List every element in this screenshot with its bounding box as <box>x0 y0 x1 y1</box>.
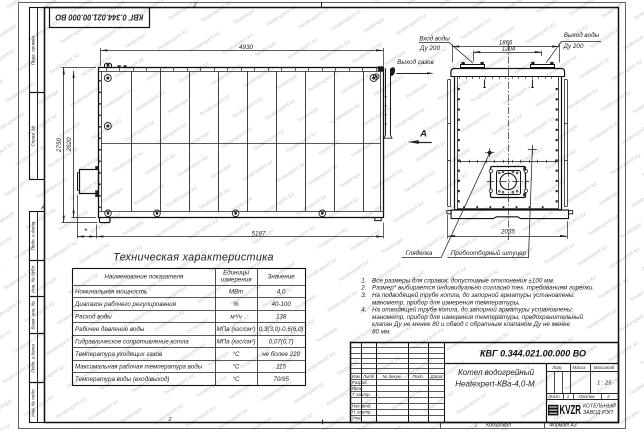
svg-text:5187: 5187 <box>251 231 266 238</box>
svg-text:2: 2 <box>167 417 171 423</box>
svg-text:%: % <box>233 301 239 308</box>
svg-text:м³/ч: м³/ч <box>230 313 242 320</box>
svg-text:ЗАВОД РЭП: ЗАВОД РЭП <box>583 410 613 416</box>
svg-text:Ду 200: Ду 200 <box>419 45 440 52</box>
svg-text:3.: 3. <box>361 292 366 299</box>
svg-text:4.: 4. <box>361 307 366 314</box>
svg-text:Пров.: Пров. <box>352 386 364 391</box>
svg-text:Рабочее давление воды: Рабочее давление воды <box>75 326 145 333</box>
svg-text:138: 138 <box>276 313 287 320</box>
svg-text:Масштаб: Масштаб <box>594 365 615 370</box>
svg-text:Размер* выбирается индивидуаль: Размер* выбирается индивидуально согласн… <box>372 284 594 292</box>
svg-text:°С: °С <box>233 376 240 383</box>
svg-text:Утв.: Утв. <box>352 415 362 420</box>
svg-text:°С: °С <box>233 363 240 370</box>
svg-text:Н. контр.: Н. контр. <box>352 410 372 415</box>
svg-text:не более 220: не более 220 <box>262 351 300 358</box>
svg-text:Изм: Изм <box>352 374 360 379</box>
svg-text:МПа (кгс/см²): МПа (кгс/см²) <box>217 326 256 333</box>
svg-text:Единицы: Единицы <box>223 270 249 277</box>
svg-text:Листов: Листов <box>578 394 596 399</box>
svg-text:№ докум.: № докум. <box>383 374 402 379</box>
svg-text:клапан Ду не менее 80 и обвод: клапан Ду не менее 80 и обвод с обратным… <box>372 320 570 328</box>
svg-text:KVZR: KVZR <box>560 403 582 417</box>
svg-text:Диапазон рабочего регулировани: Диапазон рабочего регулирования <box>74 301 177 308</box>
svg-text:Лит.: Лит. <box>551 365 562 370</box>
svg-text:Лист: Лист <box>547 394 560 399</box>
svg-text:манометр, прибор для измерения: манометр, прибор для измерения температу… <box>372 298 520 306</box>
svg-text:Формат А3: Формат А3 <box>549 422 577 428</box>
svg-text:Ду 200: Ду 200 <box>563 43 584 50</box>
svg-text:Выход газов: Выход газов <box>397 58 434 66</box>
svg-text:МПа (кгс/см²): МПа (кгс/см²) <box>217 338 256 345</box>
svg-text:80 мм.: 80 мм. <box>372 329 391 336</box>
svg-text:Взам. инв. №: Взам. инв. № <box>30 301 35 329</box>
svg-text:2: 2 <box>192 2 196 8</box>
svg-text:Копировал: Копировал <box>486 422 511 428</box>
svg-text:КОТЕЛЬНЫЙ: КОТЕЛЬНЫЙ <box>583 402 616 410</box>
svg-text:Температура воды (вход/выход): Температура воды (вход/выход) <box>75 376 169 383</box>
svg-text:4930: 4930 <box>239 44 254 51</box>
svg-text:Подп. и дата: Подп. и дата <box>30 344 35 373</box>
svg-text:Техническая характеристика: Техническая характеристика <box>113 252 274 264</box>
svg-text:КВГ 0.344.021.00.000 ВО: КВГ 0.344.021.00.000 ВО <box>480 349 587 360</box>
svg-text:Справ. №: Справ. № <box>30 126 35 147</box>
svg-text:На подводящей трубе котла, до: На подводящей трубе котла, до запорной а… <box>372 291 575 299</box>
svg-text:Все размеры для справок, допус: Все размеры для справок, допустимые откл… <box>372 276 555 284</box>
svg-text:А: А <box>419 128 427 139</box>
svg-text:0,3(3,0)-0,6(6,0): 0,3(3,0)-0,6(6,0) <box>259 326 304 333</box>
svg-text:Перв. примен.: Перв. примен. <box>30 35 35 66</box>
svg-text:Инв. № подл.: Инв. № подл. <box>30 388 35 417</box>
svg-text:0,07(0,7): 0,07(0,7) <box>269 338 294 345</box>
svg-text:Максимальная рабочая температу: Максимальная рабочая температура воды <box>75 363 203 370</box>
svg-text:40-100: 40-100 <box>272 301 292 308</box>
svg-text:Нач. отд.: Нач. отд. <box>352 404 372 409</box>
svg-text:МВт: МВт <box>229 288 243 295</box>
svg-text:1: 1 <box>475 422 478 428</box>
svg-text:Номинальная мощность: Номинальная мощность <box>75 288 147 295</box>
svg-text:КВГ 0.344.021.00.000 ВО: КВГ 0.344.021.00.000 ВО <box>55 13 144 22</box>
svg-text:Разраб.: Разраб. <box>352 380 368 385</box>
svg-text:°С: °С <box>233 351 240 358</box>
svg-text:Heatexpert-КВа-4,0-М: Heatexpert-КВа-4,0-М <box>455 380 535 389</box>
svg-text:70/95: 70/95 <box>273 376 289 383</box>
svg-text:Лист: Лист <box>362 374 375 379</box>
svg-text:манометр, прибор для измерения: манометр, прибор для измерения температу… <box>372 313 584 321</box>
svg-text:Масса: Масса <box>573 365 587 370</box>
svg-text:Вход воды: Вход воды <box>419 34 450 42</box>
svg-text:Выход воды: Выход воды <box>564 31 600 39</box>
svg-text:измерения: измерения <box>221 277 253 284</box>
svg-text:2.: 2. <box>360 285 366 292</box>
svg-text:2: 2 <box>606 394 610 399</box>
svg-text:Наименование показателя: Наименование показателя <box>104 274 184 281</box>
svg-text:Гляделка: Гляделка <box>406 249 433 257</box>
svg-text:Т. контр.: Т. контр. <box>352 392 371 397</box>
svg-text:Котел водогрейный: Котел водогрейный <box>458 368 535 377</box>
svg-text:Температура уходящих газов: Температура уходящих газов <box>75 351 163 358</box>
svg-text:2620: 2620 <box>66 137 73 153</box>
svg-text:На отводящей трубе котла, до з: На отводящей трубе котла, до запорной ар… <box>372 306 574 314</box>
svg-text:Инв. № дубл.: Инв. № дубл. <box>30 265 35 293</box>
svg-text:4,0: 4,0 <box>277 288 286 295</box>
svg-text:Дата: Дата <box>430 374 443 379</box>
svg-text:1.: 1. <box>361 277 366 284</box>
svg-text:Гидравлическое сопротивление к: Гидравлическое сопротивление котла <box>75 338 189 345</box>
svg-text:А: А <box>40 205 46 212</box>
svg-text:115: 115 <box>276 363 286 370</box>
svg-text:Подп.: Подп. <box>412 374 424 379</box>
svg-text:Значение: Значение <box>268 274 296 281</box>
svg-text:1204: 1204 <box>502 46 516 52</box>
svg-text:2750: 2750 <box>56 138 63 154</box>
svg-text:Пробоотборный штуцер: Пробоотборный штуцер <box>451 249 527 257</box>
svg-text:2035: 2035 <box>500 229 516 236</box>
svg-text:1 : 25: 1 : 25 <box>597 381 612 387</box>
svg-text:Подп. и дата: Подп. и дата <box>30 221 35 250</box>
svg-text:Расход воды: Расход воды <box>75 313 112 320</box>
